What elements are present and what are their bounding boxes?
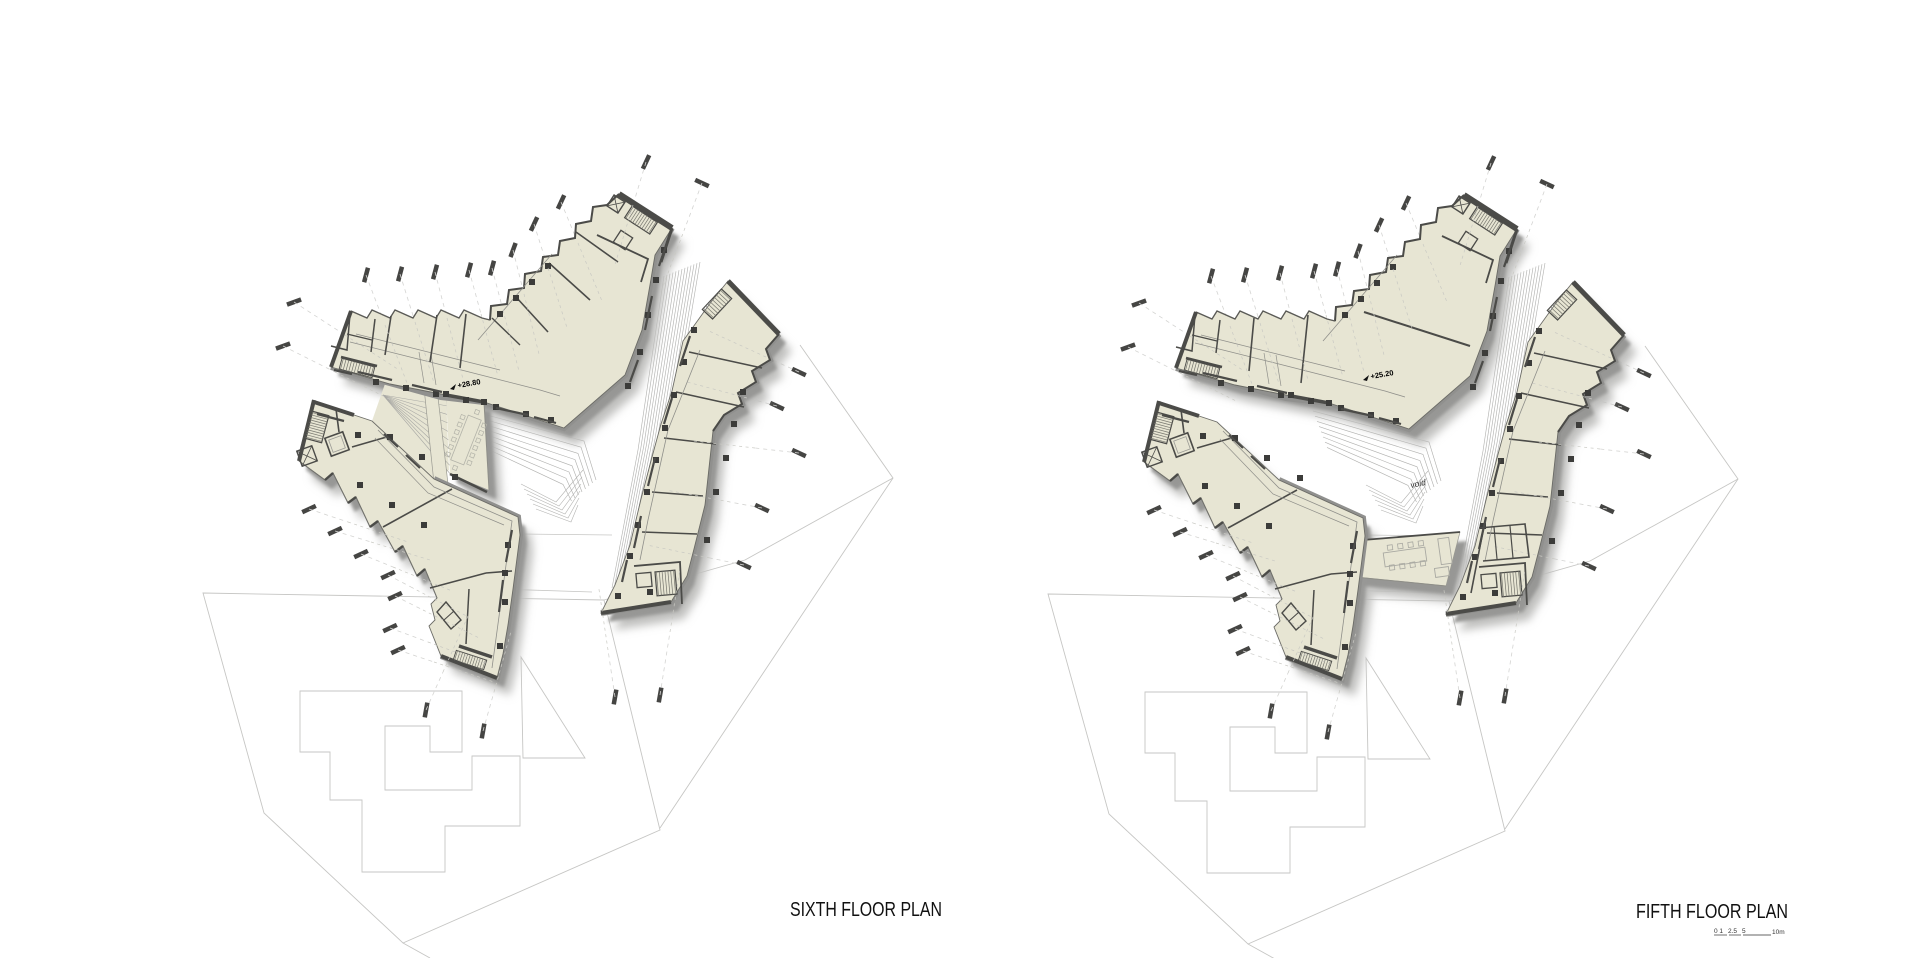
svg-text:FIFTH FLOOR PLAN: FIFTH FLOOR PLAN (1636, 900, 1788, 923)
svg-text:5: 5 (1742, 928, 1746, 935)
svg-text:10m: 10m (1772, 929, 1785, 936)
svg-text:SIXTH FLOOR PLAN: SIXTH FLOOR PLAN (790, 898, 942, 921)
svg-text:0 1: 0 1 (1714, 928, 1723, 935)
svg-text:2.5: 2.5 (1728, 928, 1737, 935)
